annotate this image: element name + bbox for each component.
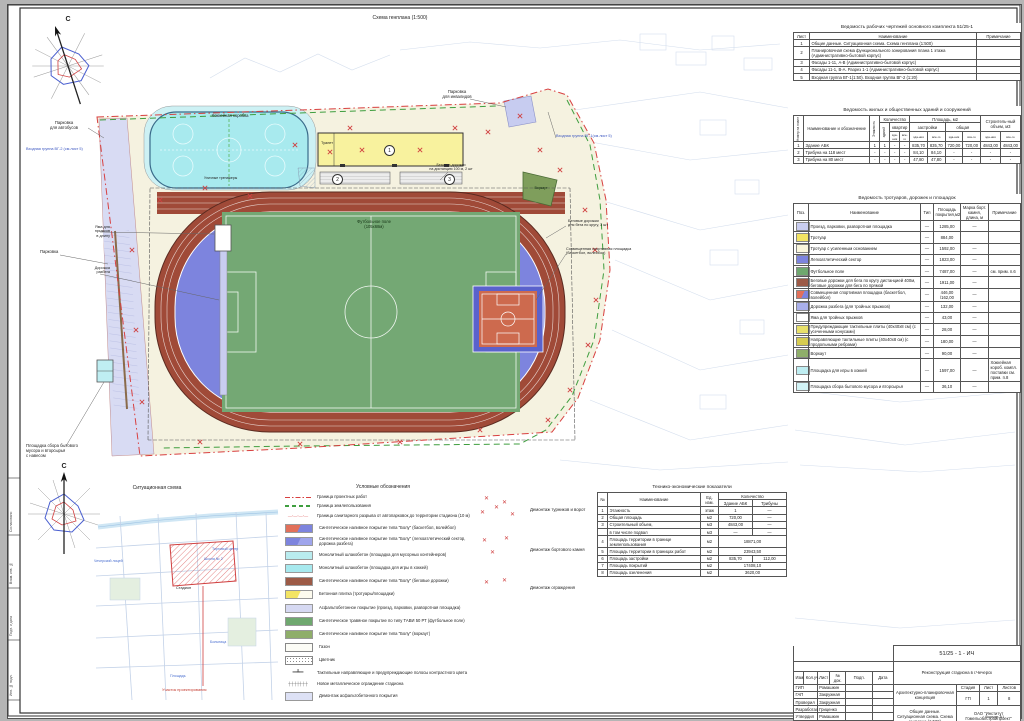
legend-symbol (285, 656, 313, 665)
surface-row: Яма для тройных прыжков — 43,00 — (794, 312, 1021, 323)
h-flats: квартир (890, 123, 910, 132)
north-rose-top (21, 15, 115, 115)
map-label-school: Школа № 2 (204, 557, 244, 561)
situational-title: Ситуационная схема (112, 485, 202, 491)
worksheet-row: 3 Фасады 1-11, А-В (Административно-быто… (794, 59, 1021, 66)
h-total-area: общая (945, 123, 980, 132)
h-name: Наименование и обозначение (803, 116, 869, 142)
label-jump-pit: Яма для прыжков в длину (70, 225, 110, 238)
situational-map (96, 512, 278, 700)
legend-title: Условные обозначения (285, 484, 481, 490)
legend-item: Синтетическое наливное покрытие типа "Бо… (285, 537, 481, 546)
col-name: Наименование (810, 33, 977, 40)
legend-label: Цветник (319, 658, 335, 663)
label-toilet: Туалет (321, 141, 343, 145)
surface-row: Футбольное поле — 7487,00 — см. прим. п.… (794, 265, 1021, 276)
surface-swatch (796, 267, 810, 276)
surface-swatch (796, 382, 810, 391)
position-marker-1: 1 (384, 145, 395, 156)
legend-item: Цветник (285, 656, 481, 665)
legend-item: ┼┼┼┼┼┼┼ Новое металлическое ограждение с… (285, 681, 481, 688)
legend-symbol (285, 643, 313, 652)
legend-symbol (285, 524, 313, 533)
building-row: 1Здание АБК 11 -- 835,70835,70 720,00720… (794, 142, 1021, 149)
margin-label-podp: Подп. и дата (9, 592, 13, 636)
tech-row: 2 Общая площадь м2 720,00 — (598, 514, 787, 521)
label-entrance-vg2: Входная группа ВГ-2 (см.лист 5) (26, 147, 102, 151)
surface-row: Направляющие тактильные плиты (40х40х8 с… (794, 336, 1021, 348)
surface-row: Легкоатлетический сектор — 1823,00 — (794, 254, 1021, 265)
surface-row: Беговые дорожки для бега по кругу дистан… (794, 277, 1021, 289)
legend-item: Граница землепользования (285, 504, 481, 509)
legend-symbol: ━┻━ (285, 669, 311, 676)
tech-econ-table: Технико-экономические показатели № Наиме… (597, 483, 787, 577)
position-marker-3: 3 (444, 174, 455, 185)
h-qty: Количество (880, 116, 910, 123)
label-sports-court: Совмещенная спортивная площадка (баскетб… (566, 247, 654, 256)
surface-swatch (796, 302, 810, 311)
tech-row: в том числе подвал м3 — — (598, 528, 787, 535)
label-track-lanes: Беговые дорожки для бега по кругу, 3 шт (568, 219, 642, 228)
map-label-square: Площадь (170, 674, 206, 678)
legend-symbol (285, 604, 313, 613)
col-sheet: Лист (794, 33, 810, 40)
worksheet-table: Ведомость рабочих чертежей основного ком… (793, 23, 1021, 81)
legend-item: —◦—◦—◦— Граница санитарного разрыва от а… (285, 513, 481, 520)
legend-symbol: —◦—◦—◦— (285, 513, 311, 520)
surface-swatch (796, 349, 810, 358)
h-area: Площадь, м2 (910, 116, 981, 123)
legend-symbol (285, 692, 313, 701)
tech-row: 3 Строительный объем, м3 4843,00 — (598, 521, 787, 528)
h-floors: Этажность (873, 121, 876, 137)
project-name: Реконструкция стадиона в г.Чечерск (893, 662, 1020, 684)
worksheet-table-title: Ведомость рабочих чертежей основного ком… (794, 23, 1021, 33)
tech-row: 6 Площадь застройки м2 835,70 112,00 (598, 555, 787, 562)
legend-item: Синтетическое травяное покрытие по типу … (285, 617, 481, 626)
legend-symbol (285, 630, 313, 639)
surface-row: Воркаут — 90,00 — (794, 348, 1021, 359)
stage-value: ГП (957, 691, 980, 705)
legend-label: Монолитный шлакобетон (площадка для мусо… (319, 553, 446, 558)
north-label-top: С (62, 16, 74, 24)
surface-swatch (796, 366, 810, 375)
margin-label-vzam: Взам. инв. № (9, 540, 13, 584)
drawing-sheet-page: Схема генплана (1:500) С С Парковка для … (0, 0, 1024, 721)
legend-label: Газон (319, 645, 330, 650)
surfaces-table-title: Ведомость тротуаров, дорожек и площадок (794, 194, 1021, 204)
building-row: 3Трибуна на 80 мест -- -- 47,8047,80 -- … (794, 156, 1021, 163)
section-name: Архитектурно-планировочная концепция (893, 684, 957, 706)
h-number: Номер на плане (797, 117, 800, 141)
surface-row: Площадка сбора бытового мусора и вторсыр… (794, 381, 1021, 392)
legend-item: Демонтаж асфальтобетонного покрытия (285, 692, 481, 701)
label-sprint-lanes: Беговые дорожки на дистанцию 100 м, 2 шт (418, 163, 484, 171)
tech-row: 7 Площадь покрытий м2 17408,10 (598, 562, 787, 569)
surface-row: Тротуар с усиленным основанием — 1592,00… (794, 243, 1021, 254)
surface-swatch (796, 290, 810, 299)
h-buildings: зданий (883, 127, 886, 137)
surface-swatch (796, 337, 810, 346)
tech-row: 8 Площадь озеленения м2 3620,00 (598, 569, 787, 576)
surface-row: Совмещенная спортивная площадка (баскетб… (794, 289, 1021, 301)
buildings-table: Ведомость жилых и общественных зданий и … (793, 106, 1021, 164)
surface-swatch (796, 313, 810, 322)
map-label-hospital: Больница (210, 640, 246, 644)
legend-item: Бетонная плитка (тротуары/площадки) (285, 590, 481, 599)
x-marks: ✕✕ ✕✕✕ (480, 496, 522, 522)
buildings-table-title: Ведомость жилых и общественных зданий и … (794, 106, 1021, 116)
x-marks: ✕✕✕ (480, 536, 522, 562)
plan-title: Схема генплана (1:500) (300, 15, 500, 21)
surface-swatch (796, 233, 810, 242)
surface-row: Предупреждающие тактильные плиты (40х40х… (794, 323, 1021, 335)
tech-row: 4 Площадь территории в границе землеполь… (598, 536, 787, 548)
margin-label-inv: Инв. № подл. (9, 644, 13, 696)
waste-platform (97, 360, 113, 382)
worksheet-row: 2 Планировочная схема функционального зо… (794, 47, 1021, 59)
label-bus-parking: Парковка для автобусов (40, 121, 88, 131)
position-marker-2: 2 (332, 174, 343, 185)
worksheet-row: 1 Общие данные. Ситуационная схема. Схем… (794, 40, 1021, 47)
surface-swatch (796, 278, 810, 287)
sheets-value: 8 (998, 691, 1021, 705)
tech-table-title: Технико-экономические показатели (598, 483, 787, 493)
legend-symbol (285, 617, 313, 626)
legend-symbol (285, 590, 313, 599)
tech-row: 5 Площадь территории в границах работ м2… (598, 548, 787, 555)
sheet-content: Общие данные. Ситуационная схема. Схема … (893, 706, 957, 721)
sheet-value: 1 (979, 691, 997, 705)
map-label-mall: Торговый центр (212, 547, 256, 551)
legend-symbol (285, 577, 313, 586)
legend-label: Бетонная плитка (тротуары/площадки) (319, 592, 395, 597)
map-label-design-site: Участок проектирования (162, 688, 252, 692)
sports-court (473, 286, 543, 352)
legend-item: Синтетическое наливное покрытие типа "Бо… (285, 524, 481, 533)
h-footprint: застройки (910, 123, 945, 132)
legend-symbol: ┼┼┼┼┼┼┼ (285, 681, 311, 688)
surface-row: Тротуар — 884,00 (794, 232, 1021, 243)
x-marks: ✕✕ (480, 574, 522, 600)
legend-symbol (285, 505, 311, 507)
legend-item: Синтетическое наливное покрытие типа "Бо… (285, 630, 481, 639)
map-label-lyceum: Чечерский лицей (94, 559, 138, 563)
label-outdoor-gym: Уличные тренажеры (204, 176, 258, 180)
north-rose-situational (28, 472, 100, 554)
legend-label: Граница проектных работ (317, 495, 367, 500)
legend-symbol (285, 497, 311, 499)
legend-label: Граница санитарного разрыва от автопарко… (317, 514, 470, 519)
legend-label: Синтетическое травяное покрытие по типу … (319, 619, 465, 624)
surface-row: Проезд, парковки, разворотная площадка —… (794, 221, 1021, 232)
legend-label: Синтетическое наливное покрытие типа "Бо… (319, 537, 481, 546)
legend-symbol (285, 551, 313, 560)
h-volume: Строитель-ный объем, м3 (980, 116, 1020, 132)
legend-label: Синтетическое наливное покрытие типа "Бо… (319, 632, 430, 637)
legend-label: Монолитный шлакобетон (площадка для игры… (319, 566, 428, 571)
surface-swatch (796, 244, 810, 253)
worksheet-row: 5 Входная группа ВГ-1(1:50). Входная гру… (794, 73, 1021, 80)
surface-swatch (796, 325, 810, 334)
legend-item: Газон (285, 643, 481, 652)
tech-row: 1 Этажность этаж 1 — (598, 507, 787, 514)
format-label: Формат А1 (985, 715, 1004, 719)
label-workout: Воркаут (526, 186, 556, 190)
legend-item: Синтетическое наливное покрытие типа "Бо… (285, 577, 481, 586)
legend-item: Монолитный шлакобетон (площадка для игры… (285, 564, 481, 573)
legend-label: Тактильные направляющие и предупреждающи… (317, 671, 467, 676)
legend-item: Монолитный шлакобетон (площадка для мусо… (285, 551, 481, 560)
legend-label: Новое металлическое ограждение стадиона (317, 682, 403, 687)
surface-swatch (796, 255, 810, 264)
doc-code: 51/25 - 1 - ИЧ (893, 646, 1020, 662)
general-notes (793, 485, 1021, 486)
surface-row: Площадка для игры в хоккей — 1597,00 — Х… (794, 359, 1021, 381)
building-row: 2Трибуна на 118 мест -- -- 84,1084,10 --… (794, 149, 1021, 156)
margin-label-agreed: Согласовано (9, 486, 13, 532)
worksheet-row: 4 Фасады 11-1, В-А. Разрез 1-1 (Админист… (794, 66, 1021, 73)
legend-symbol (285, 564, 313, 573)
map-label-stadium: Стадион (176, 586, 206, 590)
label-waste-platform: Площадка сбора бытового мусора и вторсыр… (26, 444, 106, 458)
label-disabled-parking: Парковка для инвалидов (434, 90, 480, 100)
col-note: Примечание (976, 33, 1020, 40)
legend-symbol (285, 537, 313, 546)
north-label-situational: С (58, 463, 70, 471)
label-runup: Дорожка разбега (74, 266, 110, 275)
surface-swatch (796, 222, 810, 231)
surface-row: Дорожка разбега (для тройных прыжков) — … (794, 301, 1021, 312)
legend-item: ━┻━ Тактильные направляющие и предупрежд… (285, 669, 481, 676)
label-parking: Парковка (40, 250, 70, 255)
legend-label: Демонтаж асфальтобетонного покрытия (319, 694, 397, 699)
legend-label: Граница землепользования (317, 504, 371, 509)
surfaces-table: Ведомость тротуаров, дорожек и площадок … (793, 194, 1021, 393)
legend-label: Асфальтобетонное покрытие (проезд, парко… (319, 606, 460, 611)
label-hockey-rink: Хоккейная коробка (198, 114, 262, 119)
label-entrance-vg1: Входная группа ВГ-1(см.лист 5) (556, 134, 636, 138)
legend: Условные обозначения Граница проектных р… (285, 484, 481, 705)
title-block: 51/25 - 1 - ИЧ Реконструкция стадиона в … (793, 645, 1021, 721)
outdoor-gym-area (298, 168, 315, 188)
legend-label: Синтетическое наливное покрытие типа "Бо… (319, 579, 449, 584)
legend-item: Граница проектных работ (285, 495, 481, 500)
label-football-field: Футбольное поле (105х68м) (342, 220, 406, 230)
legend-label: Синтетическое наливное покрытие типа "Бо… (319, 526, 456, 531)
legend-item: Асфальтобетонное покрытие (проезд, парко… (285, 604, 481, 613)
